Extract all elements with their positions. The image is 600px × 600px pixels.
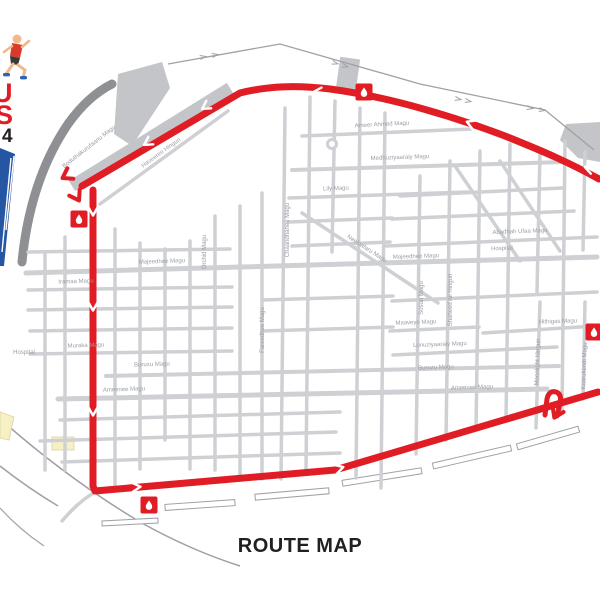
pier-outline (255, 488, 329, 500)
street-label: Buruzu Magu (418, 364, 454, 371)
logo-text-fragment-3: 4 (2, 126, 13, 147)
pier-outline (516, 426, 579, 449)
street-label: Shaheed Ali Hingun (448, 274, 454, 327)
southwest-seawall-arc-3 (0, 508, 44, 546)
street-label: Fareedhee Magu (260, 307, 266, 353)
street-label: Moonlight Hingun (534, 339, 542, 386)
runner-shoe (3, 73, 10, 76)
southwest-seawall-arc-2 (0, 466, 58, 506)
yellow-block (0, 412, 14, 440)
roundabout (328, 140, 337, 149)
seawall-tick-icon (455, 96, 462, 101)
water-station-marker (356, 84, 373, 101)
route-map-canvas: Boduthakurufaanu Magu Haveeree Hingun Am… (0, 0, 600, 600)
street-label: Maaveyo Magu (395, 319, 436, 326)
route-turn-arrow-icon (69, 190, 84, 204)
center-vertical-streets (281, 97, 385, 488)
logo-flag-shape (0, 148, 15, 266)
pier-outline (432, 445, 511, 469)
landmark-blocks (0, 412, 74, 450)
route-map-page: Boduthakurufaanu Magu Haveeree Hingun Am… (0, 0, 600, 600)
runner-head (13, 35, 22, 44)
pier-outline (102, 518, 158, 526)
street-label: Majeedhee Magu (139, 258, 186, 266)
street-label: Ameer Ahmed Magu (354, 121, 409, 130)
poi-label-hospital: Hospital (13, 350, 35, 356)
street-label: Orchid Magu (202, 235, 208, 269)
water-station-marker (71, 211, 88, 228)
poi-label-hospital: Hospital (491, 246, 513, 253)
seawall-tick-icon (465, 98, 472, 103)
route-turn-arrows (60, 168, 564, 420)
south-piers (102, 426, 580, 526)
water-station-marker (141, 497, 158, 514)
street-label: Hithigas Magu (539, 318, 578, 325)
runner-shoe (20, 76, 27, 79)
race-route-south-segment (93, 392, 598, 491)
street-label: Neeloafaru Magu (346, 234, 388, 264)
street-label: Medhuziyaaraiy Magu (371, 154, 430, 162)
harbor-access-street (62, 492, 95, 521)
street-label: Buruzu Magu (134, 361, 170, 368)
street-label: Sosun Magu (419, 281, 425, 315)
street-label: Lily Magu (323, 186, 349, 193)
direction-chevron-icon (484, 432, 494, 443)
water-station-marker (586, 324, 600, 341)
street-label: Iramaa Magu (58, 278, 94, 285)
route-map-title: ROUTE MAP (238, 535, 363, 557)
west-vertical-streets (45, 193, 262, 491)
street-label: Lonuziyaaraiy Magu (413, 341, 467, 349)
street-label: Koarukendi Magu (581, 342, 589, 389)
pier-outline (165, 500, 235, 511)
street-label: Chaandhanee Magu (285, 203, 291, 257)
runner-clipart-icon (3, 35, 29, 80)
street-label: Muraka Magu (68, 342, 105, 349)
